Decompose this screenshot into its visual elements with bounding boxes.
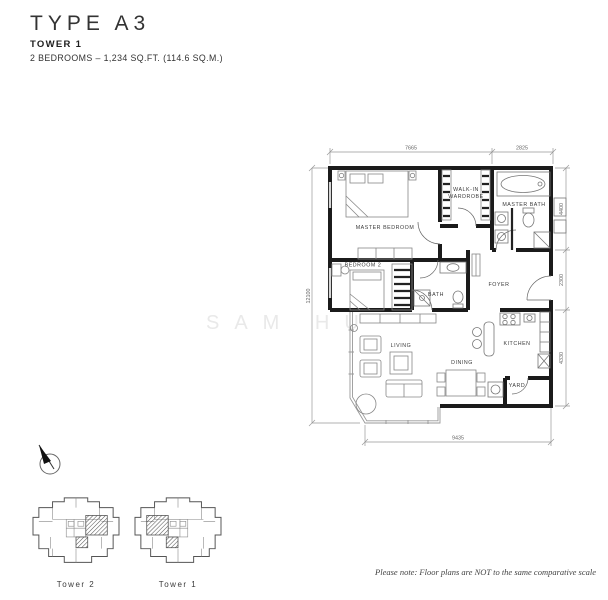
unit-highlight-tower2-small xyxy=(76,537,88,548)
dim-left: 12100 xyxy=(306,289,312,304)
room-label-yard: YARD xyxy=(509,383,526,389)
key-plan-tower1-label: Tower 1 xyxy=(130,580,226,589)
dim-right-mid: 2300 xyxy=(559,274,565,286)
north-arrow-icon xyxy=(30,438,70,482)
master-bath-fixtures xyxy=(495,172,550,250)
dim-top-left: 7665 xyxy=(405,146,417,152)
living-furniture xyxy=(351,314,437,414)
dim-top-right: 2825 xyxy=(516,146,528,152)
yard-fixtures xyxy=(488,382,503,397)
scale-footnote: Please note: Floor plans are NOT to the … xyxy=(375,567,596,577)
room-label-walk-in: WALK-IN xyxy=(453,187,479,193)
unit-highlight-tower1 xyxy=(147,515,169,535)
unit-highlight-tower1-small xyxy=(166,537,178,548)
room-label-living: LIVING xyxy=(391,343,412,349)
unit-highlight-tower2 xyxy=(86,515,108,535)
door-arcs xyxy=(412,208,551,394)
key-plan-tower2 xyxy=(28,492,124,578)
key-plan-tower2-label: Tower 2 xyxy=(28,580,124,589)
bedroom2-furniture xyxy=(332,264,384,310)
room-label-master-bedroom: MASTER BEDROOM xyxy=(356,225,415,231)
dim-right-bottom: 4330 xyxy=(559,352,565,364)
bedroom2-wardrobe xyxy=(392,264,412,310)
kitchen-fixtures xyxy=(473,312,551,368)
page-title: TYPE A3 xyxy=(30,12,223,36)
room-label-foyer: FOYER xyxy=(489,282,510,288)
room-label-master-bath: MASTER BATH xyxy=(502,202,545,208)
dining-furniture xyxy=(437,370,485,396)
room-label-bedroom2: BEDROOM 2 xyxy=(345,263,382,269)
header: TYPE A3 TOWER 1 2 BEDROOMS – 1,234 SQ.FT… xyxy=(30,12,223,63)
unit-specs: 2 BEDROOMS – 1,234 SQ.FT. (114.6 SQ.M.) xyxy=(30,53,223,63)
floor-plan: 7665 2825 4400 2300 4330 12100 9435 xyxy=(300,138,580,450)
room-label-wardrobe: WARDROBE xyxy=(448,194,483,200)
foyer-cabinet xyxy=(472,254,480,276)
tower-subtitle: TOWER 1 xyxy=(30,39,223,50)
room-label-bath: BATH xyxy=(428,292,444,298)
bath-fixtures xyxy=(414,262,466,308)
room-label-kitchen: KITCHEN xyxy=(503,341,530,347)
dim-bottom: 9435 xyxy=(452,436,464,442)
dim-right-top: 4400 xyxy=(559,203,565,215)
key-plan-tower1 xyxy=(130,492,226,578)
page: TYPE A3 TOWER 1 2 BEDROOMS – 1,234 SQ.FT… xyxy=(0,0,608,600)
room-label-dining: DINING xyxy=(451,360,473,366)
master-bedroom-furniture xyxy=(338,171,416,259)
